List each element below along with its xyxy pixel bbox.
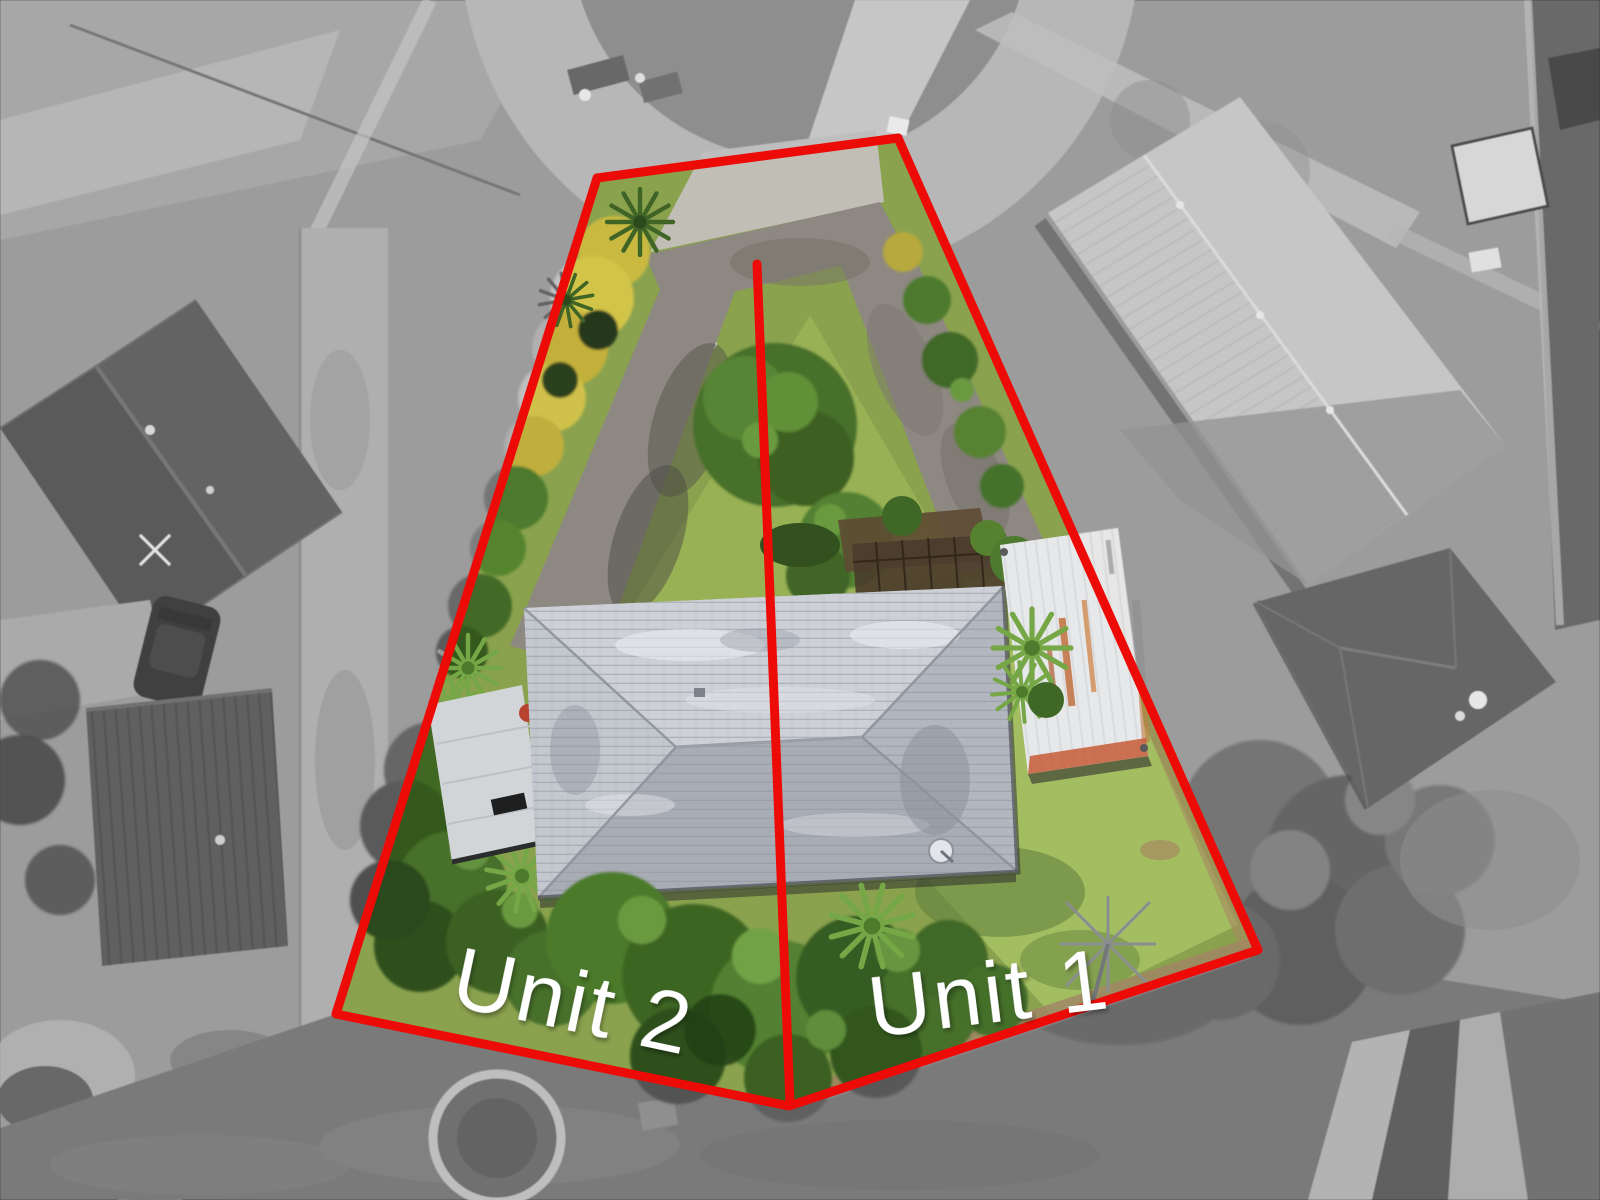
aerial-photo: Unit 2 Unit 1 [0, 0, 1600, 1200]
aerial-photo-canvas: Unit 2 Unit 1 [0, 0, 1600, 1200]
